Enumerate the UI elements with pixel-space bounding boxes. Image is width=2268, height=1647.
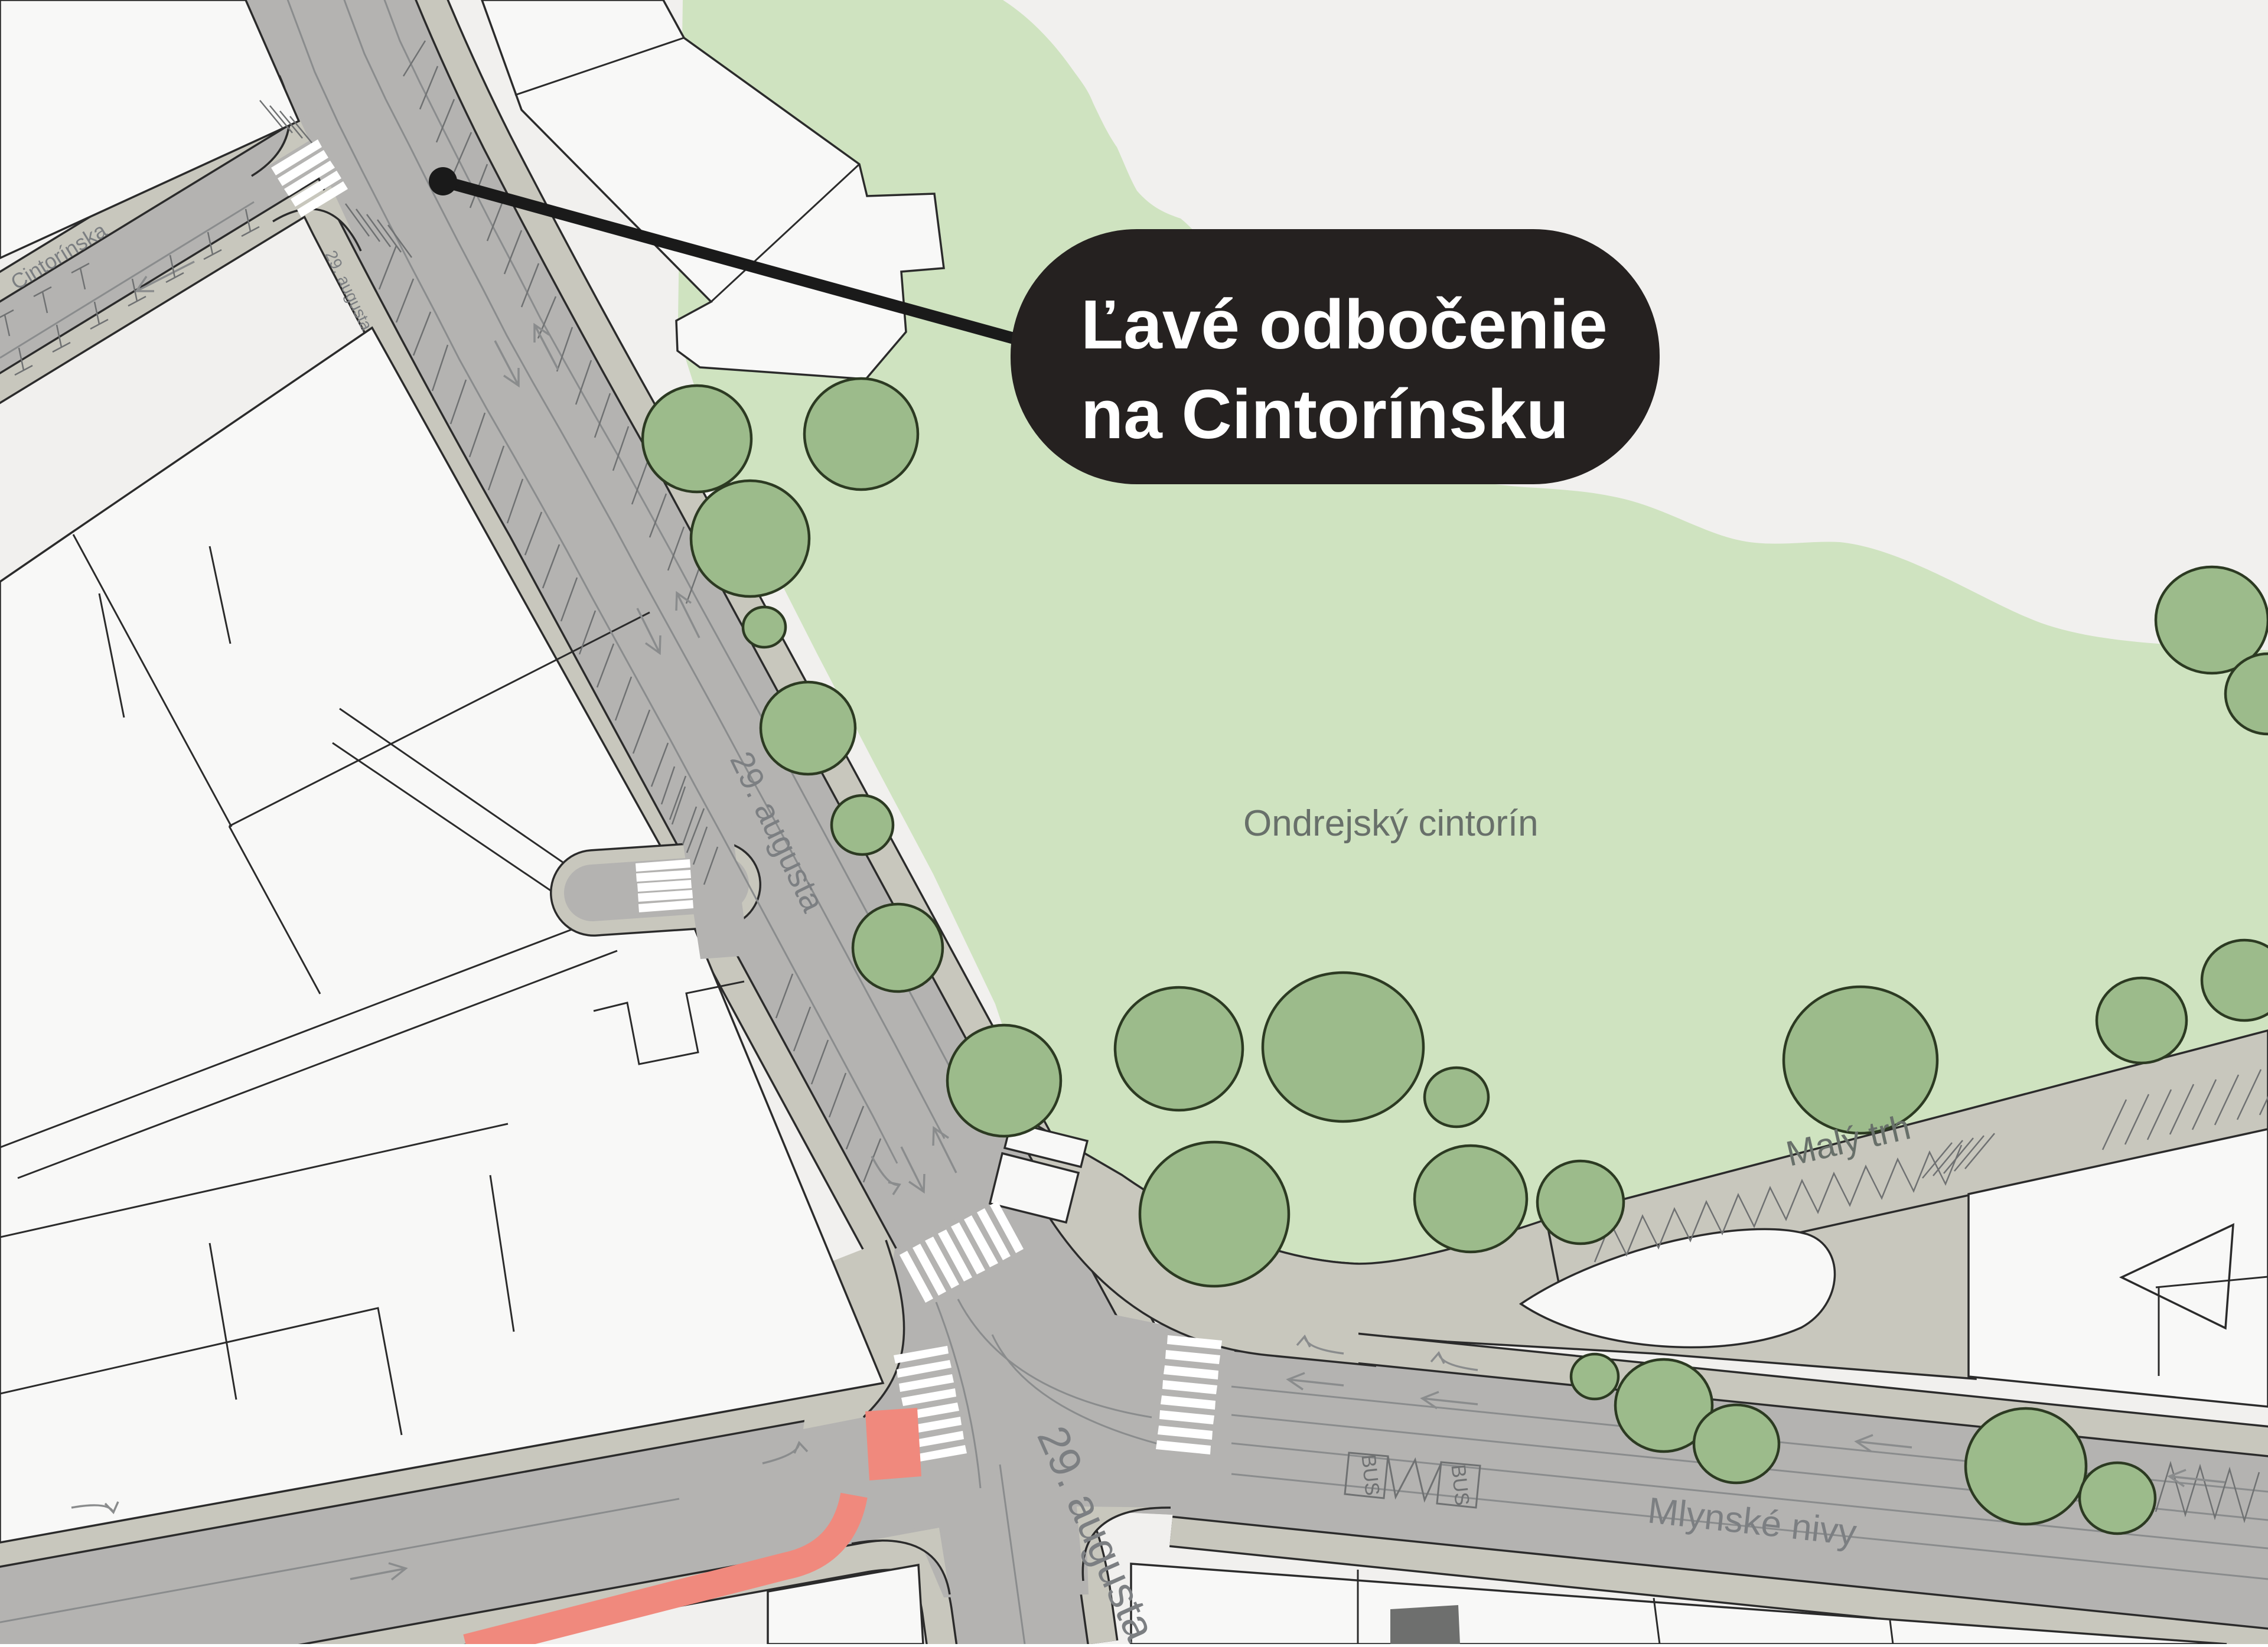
svg-text:Ľavé odbočenie: Ľavé odbočenie: [1081, 286, 1608, 364]
svg-text:BUS: BUS: [1446, 1463, 1473, 1507]
svg-text:BUS: BUS: [1357, 1453, 1383, 1497]
svg-text:Ondrejský cintorín: Ondrejský cintorín: [1243, 803, 1539, 844]
svg-text:na Cintorínsku: na Cintorínsku: [1081, 376, 1569, 454]
